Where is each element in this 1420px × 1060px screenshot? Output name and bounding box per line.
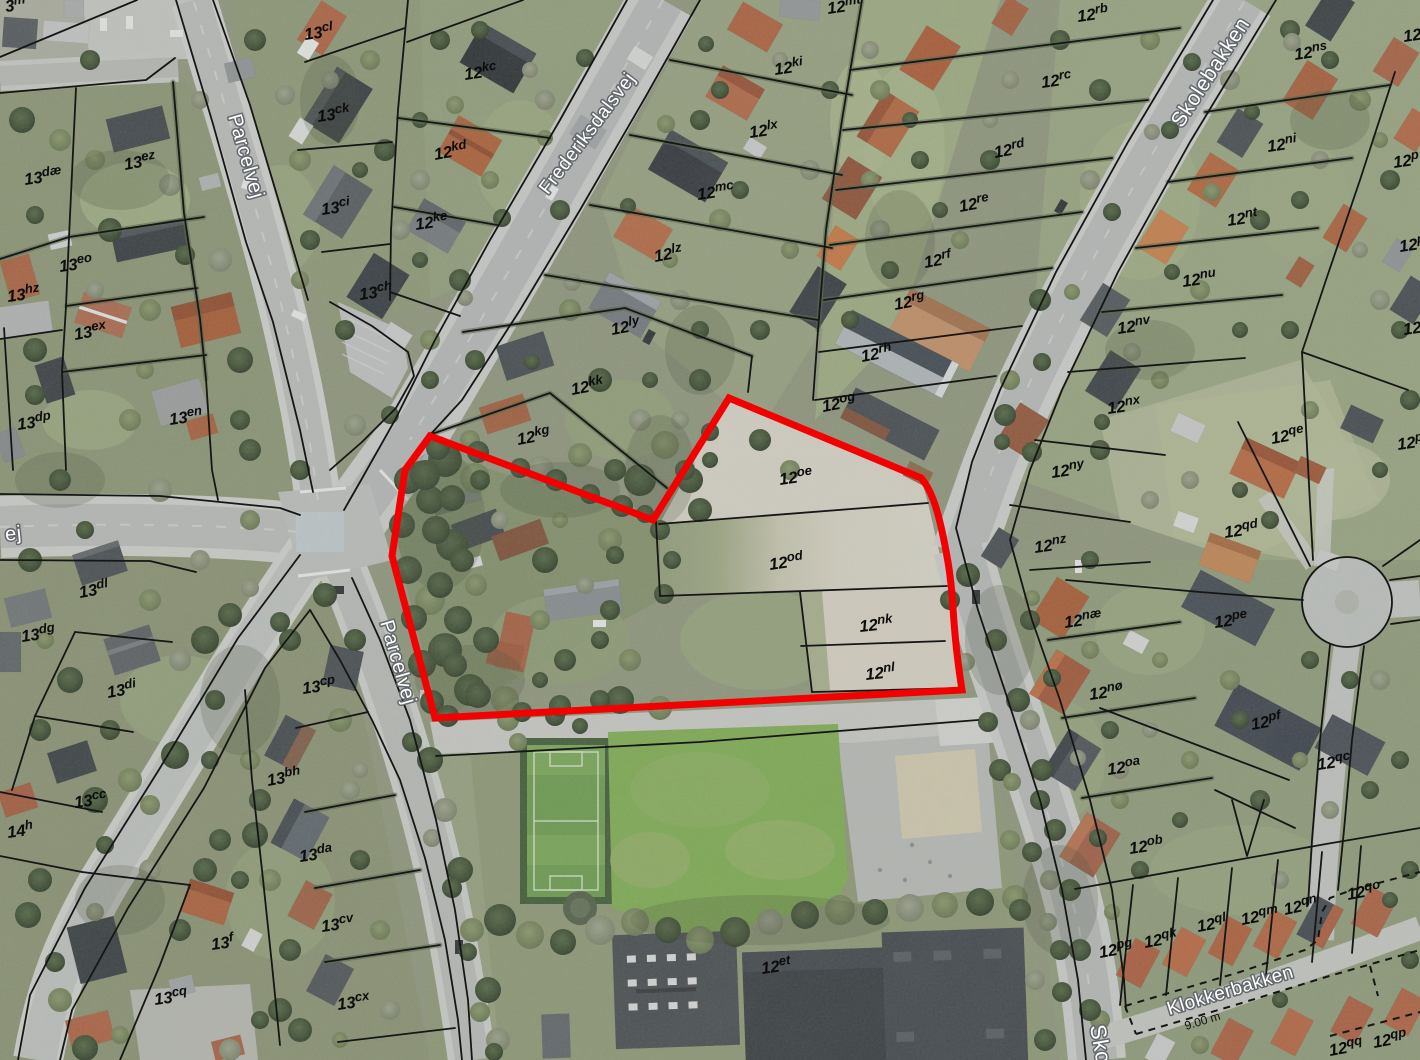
svg-text:12: 12 [1402,26,1420,46]
svg-text:ej: ej [4,522,23,546]
svg-text:12: 12 [1402,319,1420,339]
